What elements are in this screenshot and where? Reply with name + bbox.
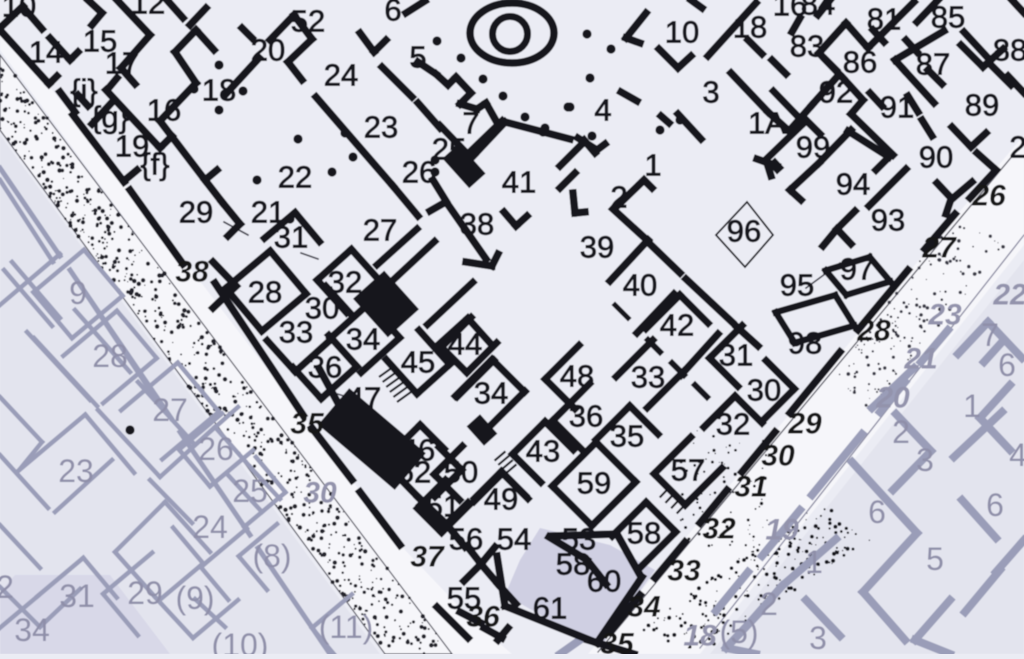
svg-text:22: 22 (278, 160, 312, 195)
svg-text:36: 36 (569, 399, 603, 434)
svg-text:2: 2 (892, 414, 910, 450)
svg-text:5: 5 (409, 40, 426, 75)
svg-text:89: 89 (965, 88, 999, 123)
svg-text:34: 34 (346, 322, 380, 357)
svg-text:92: 92 (819, 75, 853, 110)
svg-text:3: 3 (809, 620, 827, 654)
svg-text:57: 57 (671, 453, 705, 488)
svg-text:58: 58 (556, 547, 590, 582)
svg-text:93: 93 (871, 203, 905, 238)
svg-text:10: 10 (2, 0, 36, 24)
svg-text:3: 3 (916, 442, 934, 478)
svg-text:95: 95 (780, 268, 814, 303)
svg-text:29: 29 (179, 195, 213, 230)
svg-text:6: 6 (998, 347, 1016, 383)
svg-text:4: 4 (594, 93, 611, 128)
svg-text:1A: 1A (748, 106, 786, 141)
svg-text:81: 81 (867, 2, 901, 37)
svg-text:29: 29 (127, 575, 163, 611)
svg-text:33: 33 (631, 360, 665, 395)
svg-text:18: 18 (202, 73, 236, 108)
svg-text:87: 87 (916, 47, 950, 82)
svg-text:21: 21 (903, 343, 937, 376)
svg-text:35: 35 (600, 628, 635, 655)
svg-text:18: 18 (733, 10, 767, 45)
svg-text:14: 14 (29, 35, 63, 70)
svg-text:54: 54 (497, 522, 531, 557)
svg-text:84: 84 (801, 0, 835, 22)
svg-text:35: 35 (290, 408, 325, 441)
svg-text:(5): (5) (719, 614, 758, 650)
svg-text:5: 5 (926, 541, 944, 577)
svg-text:31: 31 (734, 471, 767, 504)
svg-text:34: 34 (474, 376, 508, 411)
svg-text:56: 56 (449, 522, 483, 557)
svg-text:20: 20 (875, 382, 910, 415)
svg-text:98: 98 (788, 326, 822, 361)
svg-text:61: 61 (533, 591, 567, 626)
svg-text:2: 2 (610, 180, 627, 215)
svg-text:31: 31 (274, 220, 308, 255)
svg-text:27: 27 (921, 232, 957, 265)
svg-text:60: 60 (587, 564, 621, 599)
svg-text:{f}: {f} (140, 147, 169, 182)
svg-text:20: 20 (251, 33, 285, 68)
svg-text:30: 30 (761, 440, 795, 473)
svg-text:40: 40 (623, 268, 657, 303)
svg-text:97: 97 (840, 252, 874, 287)
svg-text:34: 34 (627, 591, 661, 624)
svg-text:28: 28 (248, 275, 282, 310)
svg-text:32: 32 (702, 513, 736, 546)
svg-text:48: 48 (560, 359, 594, 394)
svg-text:27: 27 (152, 392, 188, 428)
svg-text:2: 2 (0, 569, 14, 605)
svg-text:49: 49 (484, 482, 518, 517)
svg-text:36: 36 (466, 601, 500, 634)
svg-text:33: 33 (279, 315, 313, 350)
svg-text:30: 30 (303, 477, 337, 510)
svg-text:18: 18 (683, 620, 717, 653)
svg-text:34: 34 (14, 612, 50, 648)
svg-text:32: 32 (716, 407, 750, 442)
svg-text:96: 96 (727, 214, 761, 249)
svg-text:16: 16 (147, 93, 181, 128)
svg-text:43: 43 (526, 434, 560, 469)
svg-text:42: 42 (660, 308, 694, 343)
svg-text:26: 26 (971, 180, 1006, 213)
svg-text:23: 23 (58, 453, 94, 489)
svg-text:44: 44 (448, 327, 482, 362)
svg-text:3: 3 (702, 75, 719, 110)
svg-text:47: 47 (347, 381, 381, 416)
svg-text:(8): (8) (252, 538, 291, 574)
svg-text:31: 31 (59, 578, 95, 614)
svg-text:90: 90 (919, 140, 953, 175)
svg-text:36: 36 (308, 350, 342, 385)
svg-text:19: 19 (765, 514, 799, 547)
svg-text:85: 85 (931, 0, 965, 35)
svg-text:45: 45 (401, 345, 435, 380)
svg-text:26: 26 (198, 431, 234, 467)
svg-text:91: 91 (880, 90, 914, 125)
svg-text:33: 33 (667, 555, 701, 588)
svg-text:23: 23 (927, 299, 962, 332)
svg-text:10: 10 (665, 15, 699, 50)
svg-text:(11): (11) (319, 609, 374, 645)
svg-text:28: 28 (92, 338, 128, 374)
svg-text:41: 41 (502, 165, 536, 200)
svg-text:94: 94 (836, 167, 870, 202)
svg-text:25: 25 (432, 132, 466, 167)
svg-text:99: 99 (796, 130, 830, 165)
svg-text:9: 9 (69, 275, 87, 311)
svg-text:24: 24 (192, 509, 228, 545)
svg-text:50: 50 (444, 455, 478, 490)
svg-text:58: 58 (627, 516, 661, 551)
svg-text:39: 39 (580, 230, 614, 265)
svg-text:4: 4 (1009, 437, 1024, 473)
svg-text:(9): (9) (175, 580, 214, 616)
svg-text:38: 38 (175, 256, 209, 289)
svg-text:26: 26 (402, 155, 436, 190)
svg-text:6: 6 (384, 0, 401, 28)
svg-text:6: 6 (986, 487, 1004, 523)
svg-text:23: 23 (364, 110, 398, 145)
svg-text:83: 83 (790, 29, 824, 64)
svg-text:37: 37 (410, 541, 445, 574)
svg-text:59: 59 (577, 466, 611, 501)
svg-text:17: 17 (105, 46, 139, 81)
svg-text:24: 24 (324, 58, 358, 93)
svg-text:7: 7 (981, 317, 999, 353)
svg-text:1: 1 (963, 388, 981, 424)
svg-text:(10): (10) (212, 627, 269, 654)
svg-text:27: 27 (363, 213, 397, 248)
svg-text:35: 35 (610, 419, 644, 454)
svg-text:30: 30 (747, 373, 781, 408)
svg-text:12: 12 (131, 0, 165, 21)
svg-text:1: 1 (805, 544, 823, 580)
svg-text:88: 88 (993, 33, 1024, 68)
svg-text:29: 29 (787, 408, 822, 441)
svg-text:28: 28 (856, 315, 891, 348)
svg-text:25: 25 (232, 473, 268, 509)
svg-text:52: 52 (397, 455, 431, 490)
svg-text:1: 1 (644, 148, 661, 183)
svg-text:22: 22 (992, 279, 1024, 312)
svg-text:6: 6 (868, 494, 886, 530)
svg-text:38: 38 (460, 207, 494, 242)
svg-text:31: 31 (719, 338, 753, 373)
svg-text:2: 2 (760, 586, 778, 622)
svg-text:51: 51 (426, 489, 460, 524)
svg-text:52: 52 (291, 4, 325, 39)
svg-text:2: 2 (1009, 130, 1024, 165)
